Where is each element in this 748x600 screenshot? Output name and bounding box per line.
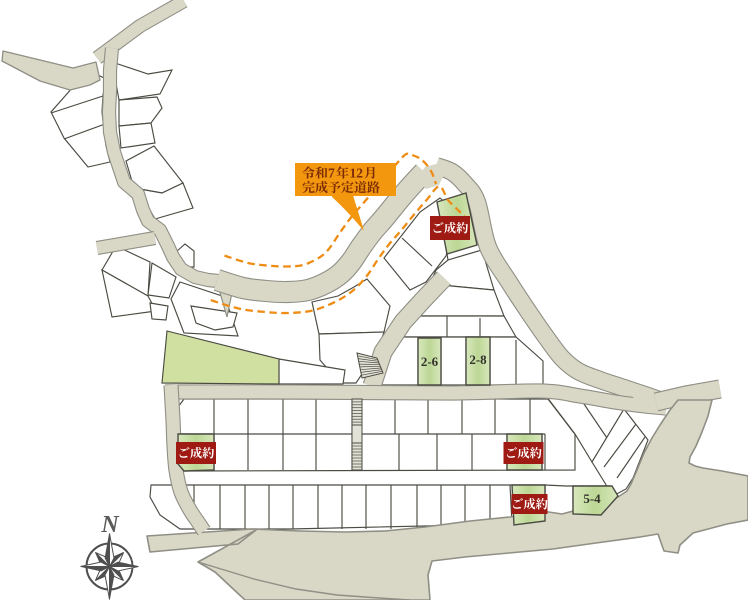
svg-text:2-6: 2-6 (421, 354, 439, 369)
svg-text:5-4: 5-4 (583, 491, 601, 506)
svg-text:12: 12 (350, 166, 364, 181)
svg-text:7: 7 (328, 166, 335, 181)
svg-text:2-8: 2-8 (469, 352, 487, 367)
svg-text:N: N (100, 512, 120, 538)
